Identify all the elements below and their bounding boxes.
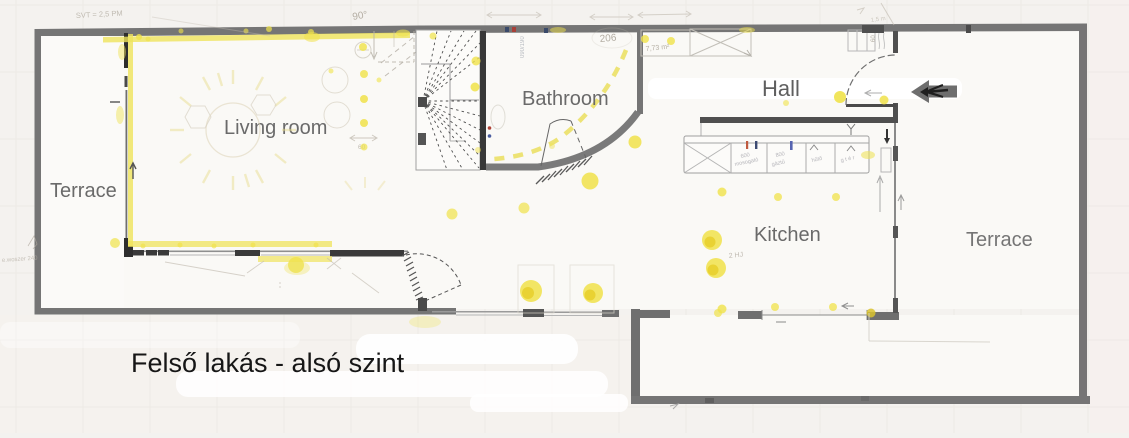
svg-text:Terrace: Terrace — [966, 229, 1033, 251]
svg-text:090/190: 090/190 — [520, 36, 526, 58]
svg-text:Hall: Hall — [762, 76, 800, 101]
svg-text:Terrace: Terrace — [50, 180, 117, 202]
svg-text:Felső lakás - alsó szint: Felső lakás - alsó szint — [131, 348, 405, 378]
svg-text:2 HJ: 2 HJ — [728, 252, 743, 260]
svg-text:Kitchen: Kitchen — [754, 224, 821, 246]
svg-text:60: 60 — [871, 35, 877, 42]
svg-text:206: 206 — [599, 33, 617, 45]
svg-text:Bathroom: Bathroom — [522, 88, 609, 110]
svg-text:Living room: Living room — [224, 117, 327, 139]
